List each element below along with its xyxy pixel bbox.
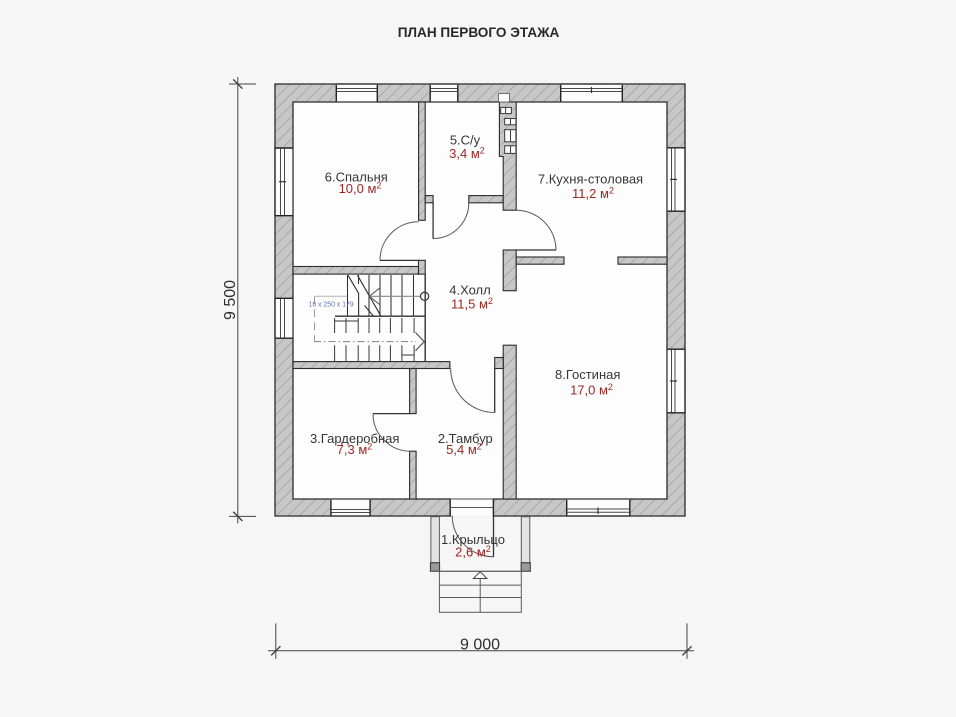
svg-text:4.Холл: 4.Холл — [449, 283, 490, 298]
svg-text:2,6 м2: 2,6 м2 — [455, 544, 491, 560]
svg-text:11,5 м2: 11,5 м2 — [451, 296, 493, 312]
svg-text:10,0 м2: 10,0 м2 — [339, 181, 382, 197]
svg-text:11,2 м2: 11,2 м2 — [572, 186, 614, 202]
svg-text:9 500: 9 500 — [222, 280, 239, 320]
svg-text:8.Гостиная: 8.Гостиная — [555, 367, 620, 382]
svg-text:5,4 м2: 5,4 м2 — [446, 441, 482, 457]
svg-text:ПЛАН ПЕРВОГО ЭТАЖА: ПЛАН ПЕРВОГО ЭТАЖА — [398, 25, 560, 40]
svg-text:16 х 250 х 179: 16 х 250 х 179 — [309, 300, 354, 308]
svg-text:17,0 м2: 17,0 м2 — [570, 382, 613, 398]
svg-text:9 000: 9 000 — [460, 637, 500, 654]
svg-text:7.Кухня-столовая: 7.Кухня-столовая — [538, 172, 643, 187]
svg-text:7,3 м2: 7,3 м2 — [337, 441, 373, 457]
svg-text:3,4 м2: 3,4 м2 — [449, 145, 485, 161]
